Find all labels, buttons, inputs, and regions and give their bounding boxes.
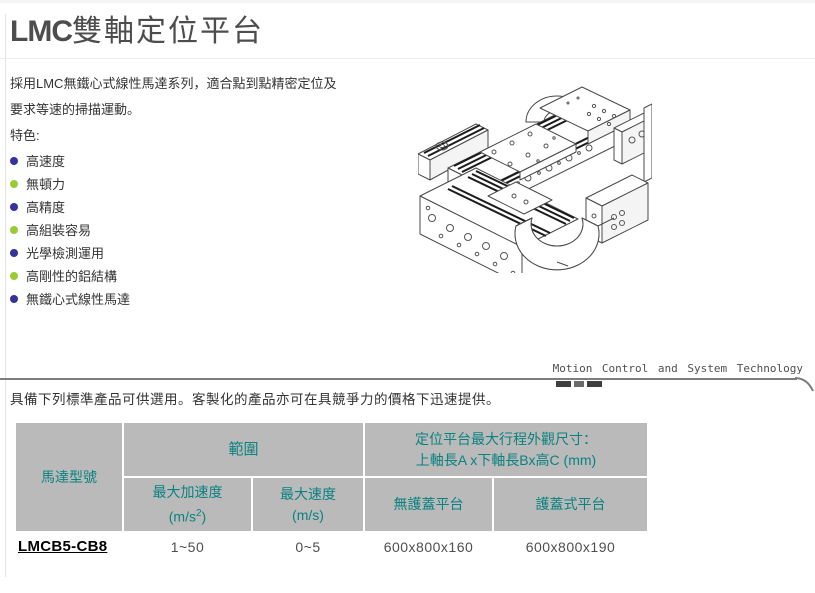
- th-dimensions-line1: 定位平台最大行程外觀尺寸：: [365, 429, 647, 450]
- bullet-icon: [10, 295, 18, 303]
- banner-dashes: [556, 381, 605, 387]
- intro-paragraph: 採用LMC無鐵心式線性馬達系列，適合點到點精密定位及 要求等速的掃描運動。 特色…: [10, 71, 336, 149]
- feature-item: 高速度: [10, 149, 130, 172]
- cell-no-cover-dims: 600x800x160: [365, 533, 492, 560]
- feature-label: 高精度: [26, 197, 65, 216]
- banner-dash: [574, 381, 584, 387]
- features-label: 特色:: [10, 123, 336, 149]
- th-no-cover: 無護蓋平台: [365, 478, 492, 531]
- intro-line-1: 採用LMC無鐵心式線性馬達系列，適合點到點精密定位及: [10, 71, 336, 97]
- th-max-speed: 最大速度 (m/s): [253, 478, 363, 531]
- feature-label: 無鐵心式線性馬達: [26, 289, 130, 308]
- th-max-speed-label: 最大速度: [253, 484, 363, 505]
- feature-item: 無鐵心式線性馬達: [10, 287, 130, 310]
- cell-model: LMCB5-CB8: [16, 533, 122, 560]
- th-dimensions: 定位平台最大行程外觀尺寸： 上軸長A x下軸長Bx高C (mm): [365, 423, 647, 476]
- th-max-accel-unit: (m/s2): [124, 503, 251, 528]
- th-covered: 護蓋式平台: [494, 478, 647, 531]
- cell-covered-dims: 600x800x190: [494, 533, 647, 560]
- feature-label: 光學檢測運用: [26, 243, 104, 262]
- th-range: 範圍: [124, 423, 363, 476]
- banner-dash: [587, 381, 602, 387]
- bullet-icon: [10, 180, 18, 188]
- th-motor-model: 馬達型號: [16, 423, 122, 531]
- banner-swoosh: [795, 377, 815, 393]
- banner-dash: [556, 381, 571, 387]
- th-max-speed-unit: (m/s): [253, 505, 363, 526]
- cell-max-speed: 0~5: [253, 533, 363, 560]
- feature-label: 無頓力: [26, 174, 65, 193]
- top-strip: [0, 0, 815, 3]
- feature-label: 高剛性的鋁結構: [26, 266, 117, 285]
- model-link[interactable]: LMCB5-CB8: [18, 538, 107, 555]
- bullet-icon: [10, 226, 18, 234]
- feature-item: 光學檢測運用: [10, 241, 130, 264]
- motion-banner-text: Motion Control and System Technology: [553, 362, 803, 375]
- bullet-icon: [10, 203, 18, 211]
- bullet-icon: [10, 249, 18, 257]
- product-isometric-drawing: [418, 68, 652, 273]
- feature-item: 高組裝容易: [10, 218, 130, 241]
- intro-line-2: 要求等速的掃描運動。: [10, 97, 336, 123]
- products-intro: 具備下列標準產品可供選用。客製化的產品亦可在具競爭力的價格下迅速提供。: [10, 388, 500, 408]
- bullet-icon: [10, 272, 18, 280]
- th-max-accel: 最大加速度 (m/s2): [124, 478, 251, 531]
- page-title: LMC雙軸定位平台: [10, 6, 264, 50]
- feature-label: 高組裝容易: [26, 220, 91, 239]
- feature-list: 高速度 無頓力 高精度 高組裝容易 光學檢測運用 高剛性的鋁結構 無鐵心式線性馬…: [10, 149, 130, 310]
- feature-item: 高剛性的鋁結構: [10, 264, 130, 287]
- feature-item: 高精度: [10, 195, 130, 218]
- feature-label: 高速度: [26, 151, 65, 170]
- page-title-brand: LMC: [10, 15, 72, 48]
- feature-item: 無頓力: [10, 172, 130, 195]
- cell-max-accel: 1~50: [124, 533, 251, 560]
- page: { "title": { "brand": "LMC", "rest": "雙軸…: [0, 0, 815, 593]
- th-dimensions-line2: 上軸長A x下軸長Bx高C (mm): [365, 450, 647, 471]
- spec-table: 馬達型號 範圍 定位平台最大行程外觀尺寸： 上軸長A x下軸長Bx高C (mm)…: [14, 421, 649, 562]
- title-divider: [0, 58, 815, 59]
- left-vertical-rule: [5, 14, 6, 577]
- motion-banner-line: [0, 378, 797, 380]
- page-title-text: 雙軸定位平台: [72, 14, 264, 49]
- bullet-icon: [10, 157, 18, 165]
- product-figure: [418, 68, 652, 273]
- th-max-accel-label: 最大加速度: [124, 482, 251, 503]
- table-row: LMCB5-CB8 1~50 0~5 600x800x160 600x800x1…: [16, 533, 647, 560]
